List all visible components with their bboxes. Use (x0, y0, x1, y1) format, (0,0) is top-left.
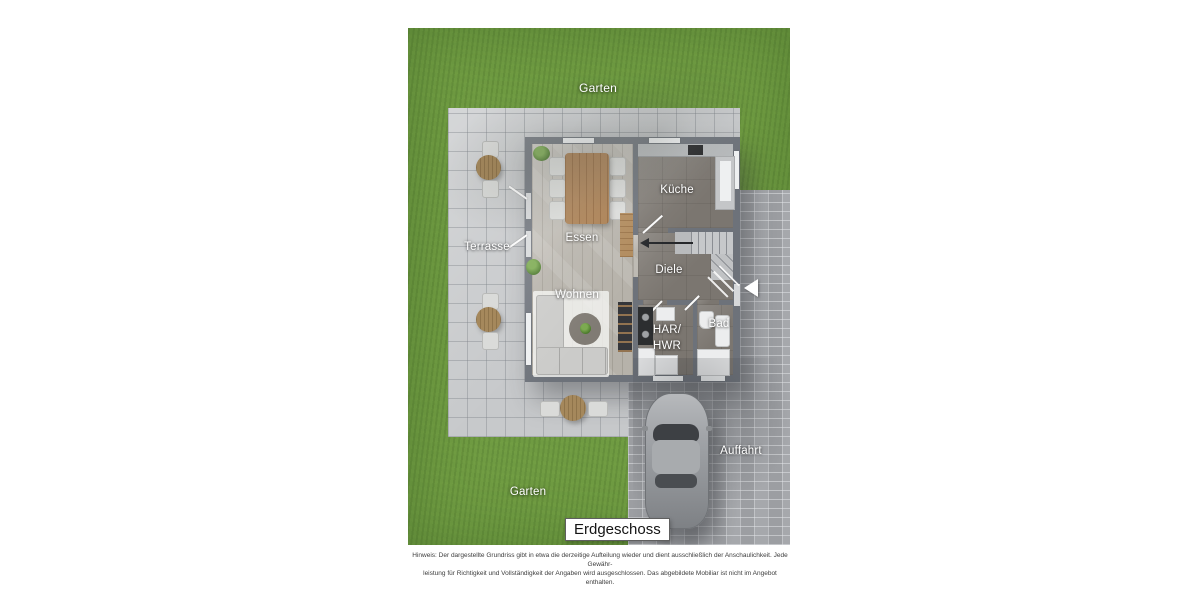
window (649, 138, 680, 143)
stairs-direction-arrowhead-icon (640, 238, 649, 248)
utility-label-line1: HAR/ (653, 324, 681, 336)
car-mirror (642, 426, 648, 431)
refrigerator (720, 161, 731, 201)
dining-chair (549, 201, 566, 220)
plant (526, 259, 541, 275)
dining-hall-opening (633, 235, 638, 277)
disclaimer-line2: leistung für Richtigkeit und Vollständig… (408, 569, 792, 587)
dining-label: Essen (566, 232, 599, 244)
stairs-direction-arrow-icon (649, 242, 693, 244)
dining-chair (549, 157, 566, 176)
window (653, 376, 683, 381)
dining-chair (609, 179, 626, 198)
entrance-arrow-icon (744, 279, 758, 297)
sofa-main (536, 347, 608, 375)
utility-appliance (638, 348, 655, 376)
stairs-straight-run (691, 232, 733, 254)
terrace-chair (540, 401, 560, 417)
window (526, 313, 531, 365)
car-mirror (706, 426, 712, 431)
terrace-table (476, 307, 501, 332)
shower (697, 349, 730, 376)
car (645, 393, 709, 529)
floor-title: Erdgeschoss (565, 518, 670, 541)
utility-cabinet (656, 307, 675, 321)
garden-label-top: Garten (579, 81, 617, 95)
plant (580, 323, 591, 334)
terrace-table (560, 395, 586, 421)
driveway-label: Auffahrt (720, 445, 762, 457)
dining-chair (609, 157, 626, 176)
car-roof (652, 440, 700, 474)
disclaimer-line1: Hinweis: Der dargestellte Grundriss gibt… (408, 551, 792, 569)
terrace-table (476, 155, 501, 180)
terrace-chair (482, 332, 499, 350)
car-rear-window (655, 474, 697, 488)
window (563, 138, 594, 143)
garden-label-bottom: Garten (510, 486, 546, 498)
disclaimer-text: Hinweis: Der dargestellte Grundriss gibt… (408, 551, 792, 587)
plant (533, 146, 550, 161)
bathroom-label: Bad (708, 318, 729, 330)
utility-door-opening (643, 300, 667, 305)
utility-cabinet (655, 355, 678, 375)
dining-table (565, 153, 609, 224)
washer-dryer-stack (638, 307, 653, 345)
terrace-label: Terrasse (464, 241, 510, 253)
hallway-label: Diele (655, 264, 682, 276)
dining-chair (549, 179, 566, 198)
house-footprint (525, 137, 740, 382)
terrace-chair (588, 401, 608, 417)
tv-lowboard (618, 302, 632, 352)
plan-scene: Garten Terrasse Essen Küche Diele Wohnen… (408, 28, 790, 545)
cooktop (688, 145, 703, 155)
sideboard (620, 213, 633, 257)
living-label: Wohnen (555, 289, 599, 301)
floor-plan-image: Garten Terrasse Essen Küche Diele Wohnen… (0, 0, 1200, 600)
kitchen-label: Küche (660, 184, 694, 196)
terrace-chair (482, 180, 499, 198)
window (701, 376, 725, 381)
bathroom-door-opening (697, 300, 719, 305)
utility-label-line2: HWR (653, 340, 681, 352)
